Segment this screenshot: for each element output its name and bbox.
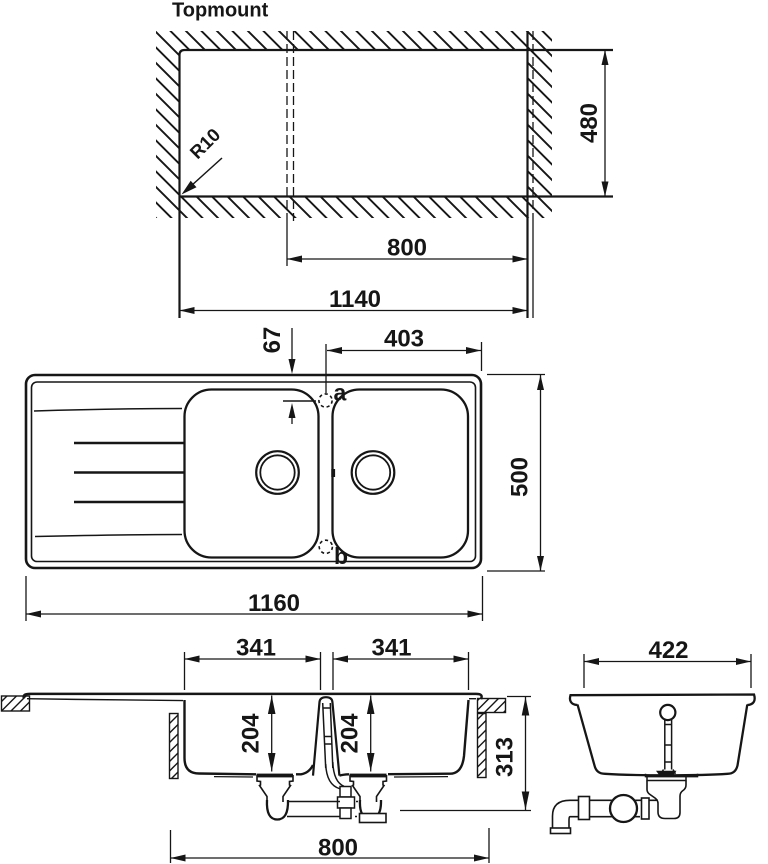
- svg-text:313: 313: [492, 737, 519, 777]
- svg-text:341: 341: [371, 635, 411, 662]
- svg-text:480: 480: [576, 103, 603, 143]
- svg-text:422: 422: [648, 637, 688, 664]
- svg-text:800: 800: [387, 235, 427, 262]
- svg-text:67: 67: [259, 327, 286, 354]
- svg-text:800: 800: [318, 835, 358, 862]
- svg-text:204: 204: [238, 713, 265, 754]
- svg-text:1140: 1140: [329, 286, 381, 313]
- svg-text:341: 341: [236, 635, 276, 662]
- svg-text:1160: 1160: [248, 590, 300, 617]
- svg-text:Topmount: Topmount: [172, 0, 269, 22]
- svg-text:204: 204: [337, 713, 364, 754]
- svg-text:a: a: [334, 379, 347, 405]
- svg-text:500: 500: [507, 457, 534, 497]
- svg-text:b: b: [334, 543, 348, 569]
- svg-text:403: 403: [384, 326, 424, 353]
